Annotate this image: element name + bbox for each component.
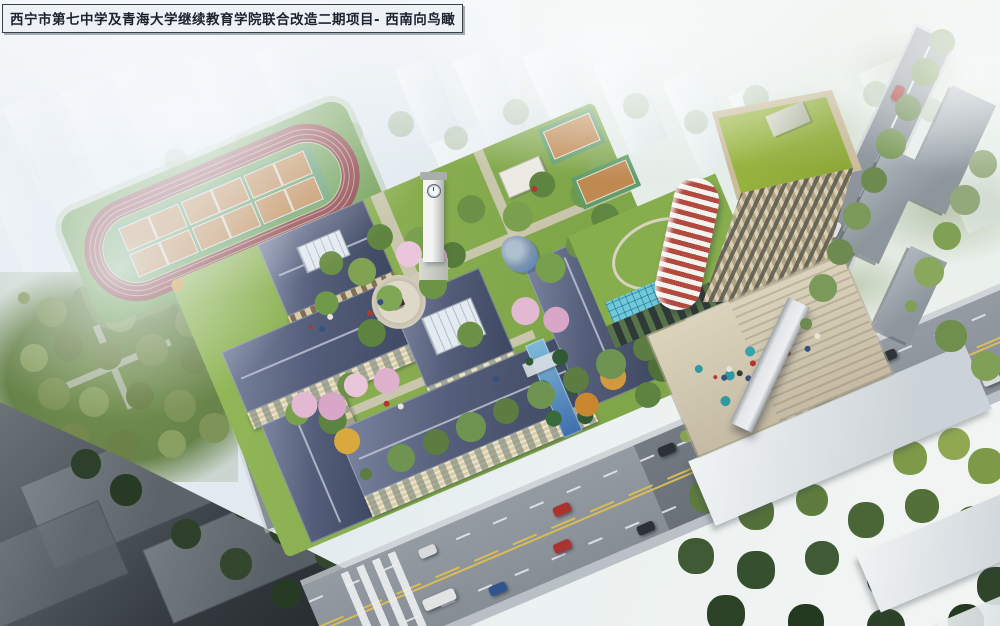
east-street-trees — [800, 318, 812, 330]
white-building — [857, 469, 1000, 612]
title-label: 西宁市第七中学及青海大学继续教育学院联合改造二期项目- 西南向鸟瞰 — [2, 4, 463, 33]
gray-building — [873, 246, 947, 344]
park-trees — [18, 292, 30, 304]
people — [713, 375, 718, 380]
car — [417, 543, 437, 559]
gray-building — [902, 85, 996, 214]
title-text: 西宁市第七中学及青海大学继续教育学院联合改造二期项目- 西南向鸟瞰 — [10, 12, 455, 28]
boulevard-trees — [360, 468, 372, 480]
east-street-trees — [905, 300, 917, 312]
rendering-canvas: 西宁市第七中学及青海大学继续教育学院联合改造二期项目- 西南向鸟瞰 — [0, 0, 1000, 626]
tower-cap — [420, 172, 447, 180]
umbrellas — [694, 364, 704, 374]
statue — [390, 290, 405, 309]
clock-tower — [419, 170, 449, 282]
crosswalk — [341, 550, 431, 626]
clock-face — [427, 184, 441, 198]
park-path — [93, 324, 135, 410]
